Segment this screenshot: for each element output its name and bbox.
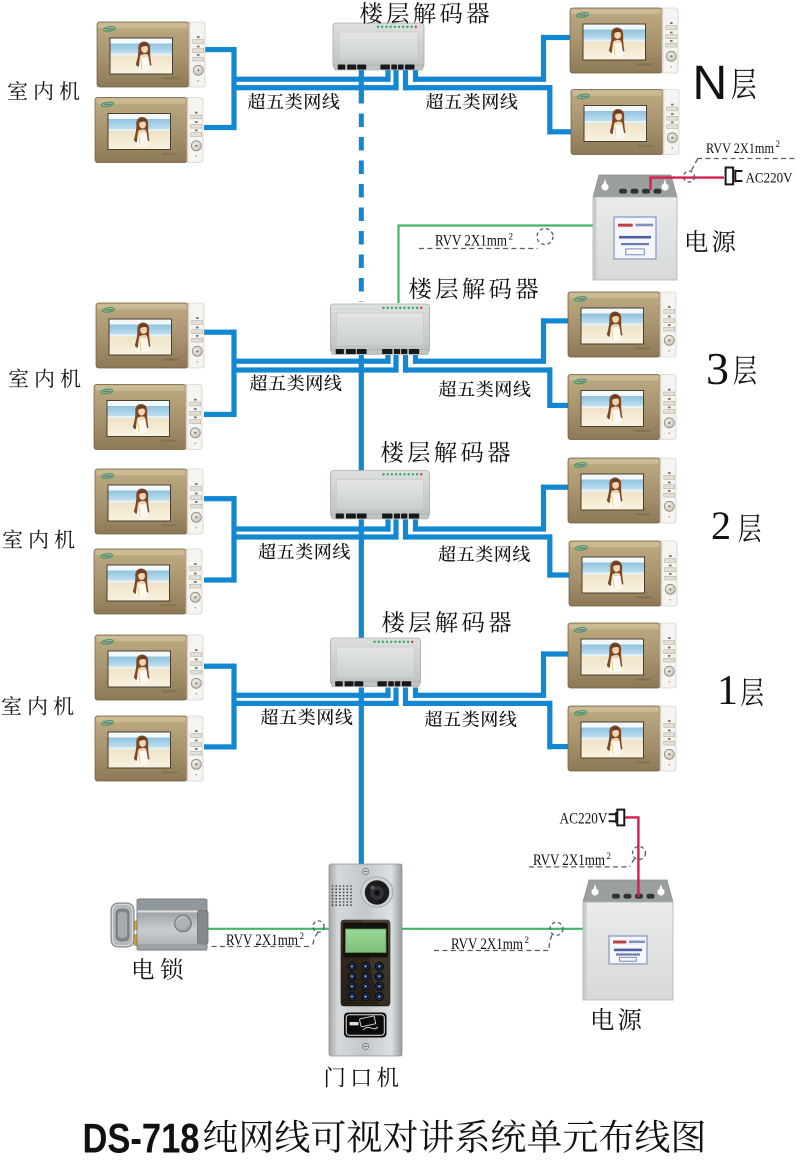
svg-text:RVV 2X1mm: RVV 2X1mm: [451, 936, 523, 953]
svg-text:2: 2: [776, 139, 781, 149]
svg-text:1: 1: [717, 668, 738, 714]
svg-text:N: N: [693, 57, 728, 110]
svg-text:RVV 2X1mm: RVV 2X1mm: [435, 233, 507, 250]
svg-text:2: 2: [300, 931, 305, 941]
svg-text:RVV 2X1mm: RVV 2X1mm: [533, 852, 605, 869]
svg-text:2: 2: [525, 935, 530, 945]
svg-text:2: 2: [607, 851, 612, 861]
svg-text:2: 2: [711, 503, 731, 548]
svg-text:RVV 2X1mm: RVV 2X1mm: [226, 932, 298, 949]
svg-text:2: 2: [509, 232, 514, 242]
svg-text:RVV 2X1mm: RVV 2X1mm: [706, 141, 774, 157]
svg-text:AC220V: AC220V: [746, 171, 793, 187]
svg-text:3: 3: [706, 343, 729, 394]
svg-text:DS-718: DS-718: [83, 1115, 200, 1158]
svg-text:AC220V: AC220V: [560, 811, 608, 828]
